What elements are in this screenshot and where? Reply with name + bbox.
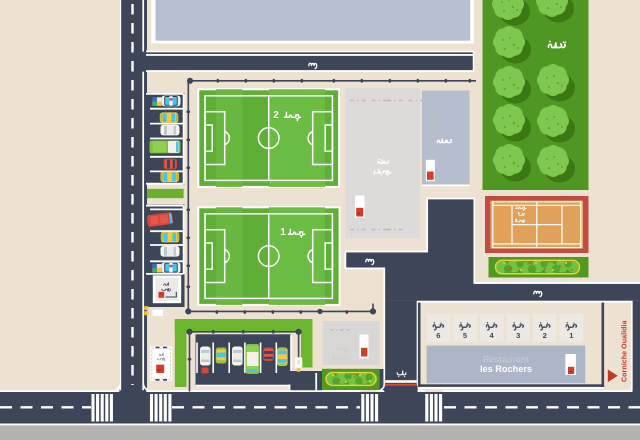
svg-text:Restaurant: Restaurant [483, 354, 529, 364]
svg-text:6: 6 [436, 331, 440, 340]
svg-text:2: 2 [543, 331, 547, 340]
svg-text:2: 2 [273, 110, 279, 121]
svg-text:1: 1 [280, 227, 286, 238]
svg-text:Corniche Oualidia: Corniche Oualidia [622, 320, 629, 382]
svg-text:3: 3 [516, 331, 520, 340]
svg-text:les Rochers: les Rochers [480, 364, 532, 374]
